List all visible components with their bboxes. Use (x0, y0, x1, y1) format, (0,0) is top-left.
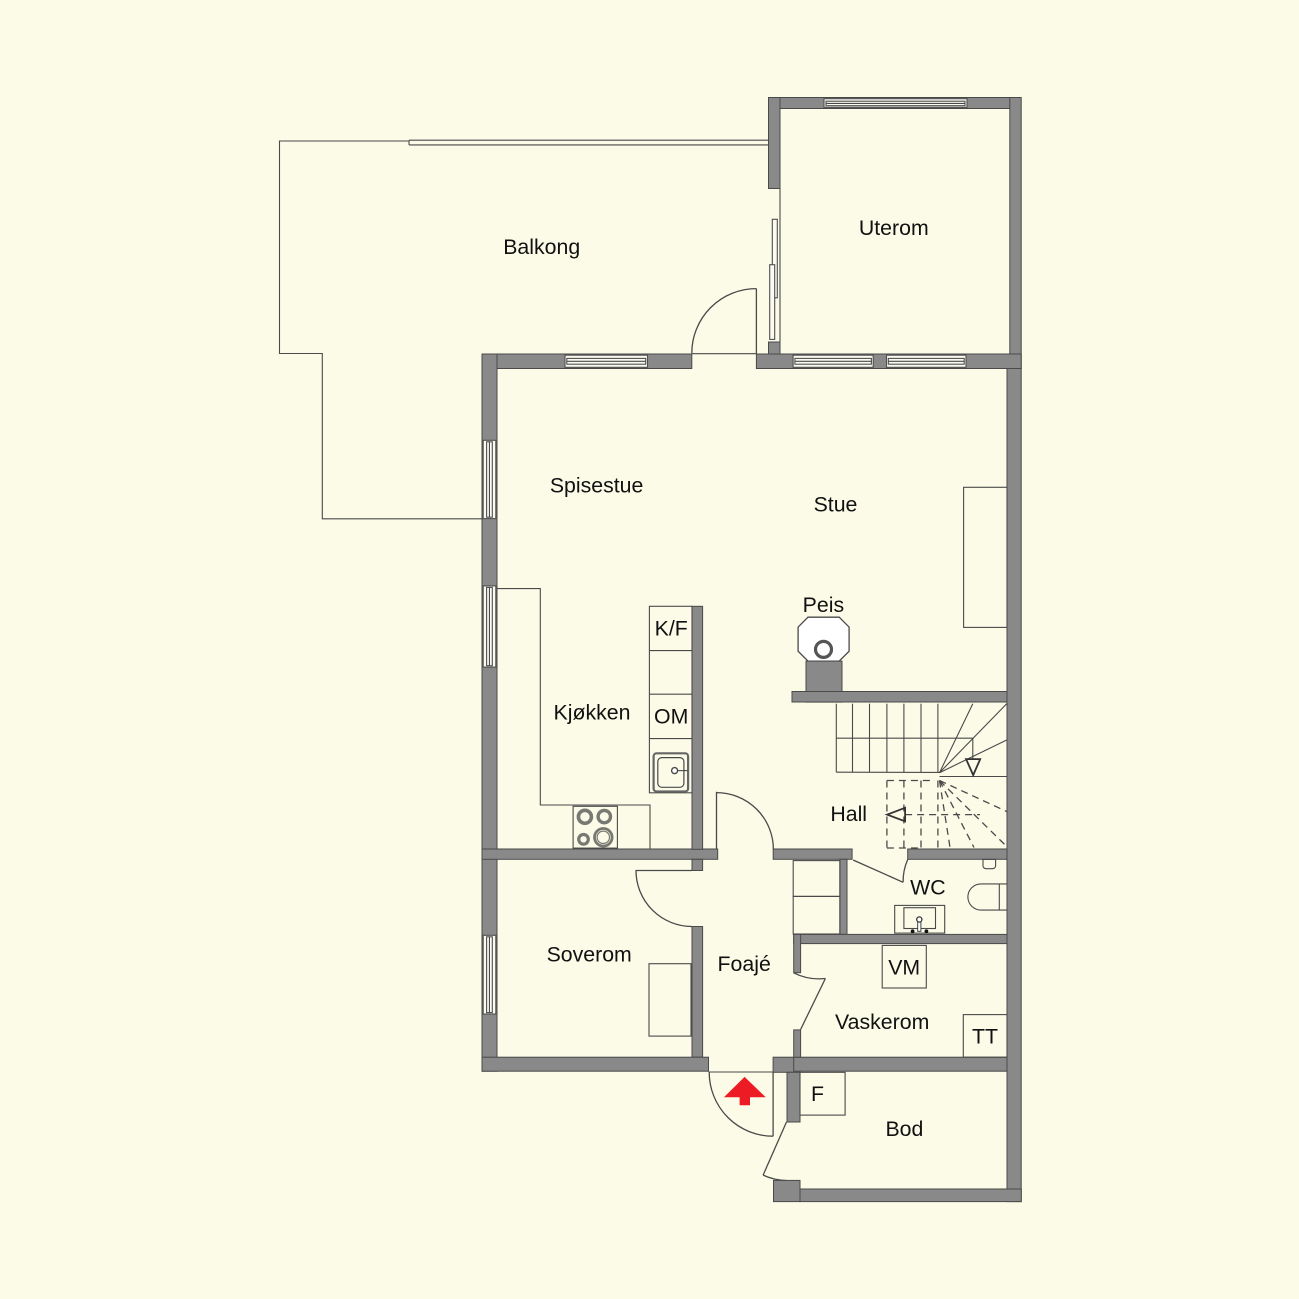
svg-text:VM: VM (888, 955, 920, 979)
svg-text:Bod: Bod (885, 1117, 923, 1141)
svg-text:K/F: K/F (655, 617, 688, 641)
svg-text:OM: OM (654, 705, 688, 729)
svg-text:Vaskerom: Vaskerom (835, 1010, 929, 1034)
svg-text:F: F (811, 1082, 824, 1106)
svg-text:Foajé: Foajé (718, 952, 771, 976)
svg-text:Kjøkken: Kjøkken (554, 700, 631, 724)
svg-text:Soverom: Soverom (547, 943, 632, 967)
svg-text:WC: WC (910, 875, 945, 899)
svg-text:Hall: Hall (830, 802, 867, 826)
svg-text:Spisestue: Spisestue (550, 474, 644, 498)
svg-text:Peis: Peis (803, 593, 844, 617)
svg-text:TT: TT (972, 1025, 998, 1049)
svg-text:Stue: Stue (814, 493, 858, 517)
svg-text:Balkong: Balkong (503, 235, 580, 259)
svg-text:Uterom: Uterom (859, 216, 929, 240)
